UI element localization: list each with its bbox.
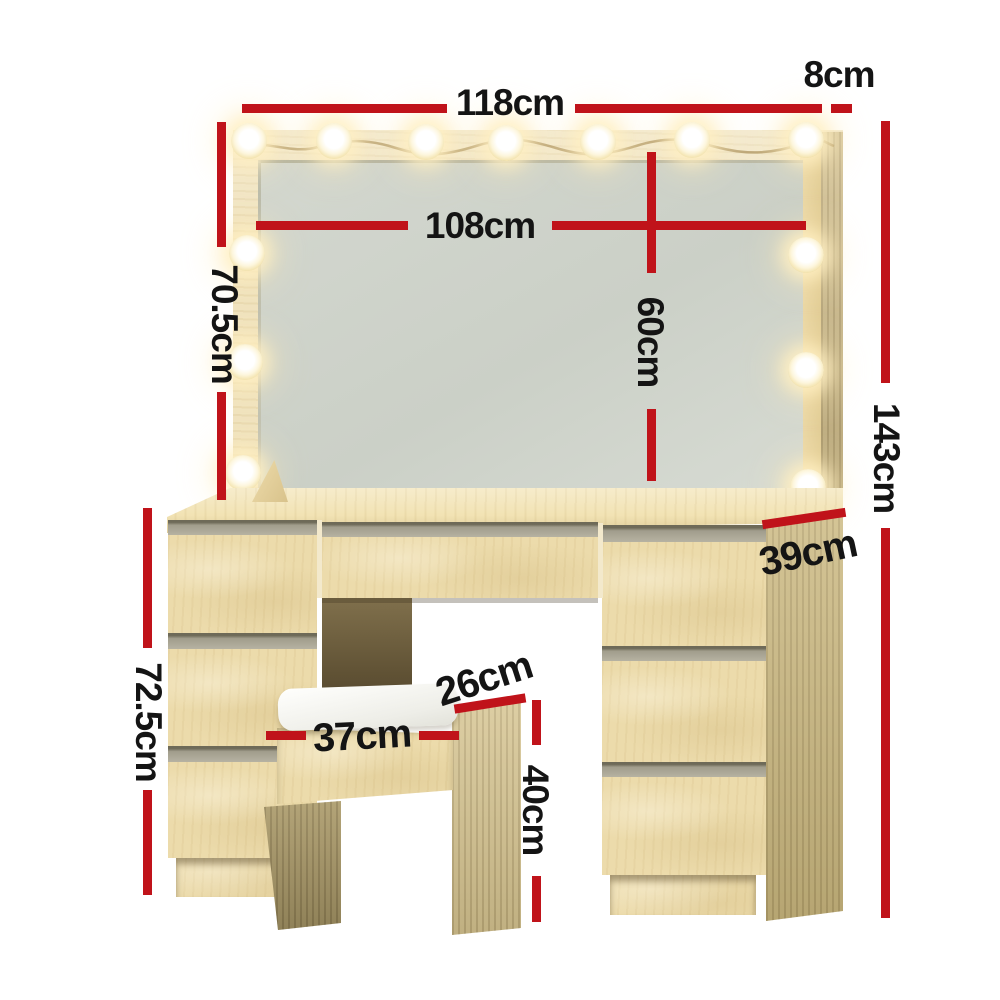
drawer-gap [168,520,317,535]
dim-line-mirror-height-top [217,122,226,247]
drawer-front [602,777,766,875]
light-bulb-icon [488,125,524,161]
drawer-gap [168,633,317,649]
dim-line-overall-height-bottom [881,528,890,918]
dimension-label-mirror-width: 108cm [400,206,560,246]
drawer-front [602,661,766,762]
dim-line-mirror-height-bottom [217,392,226,500]
right-unit-plinth [610,875,756,915]
drawer-gap [602,525,766,542]
product-dimension-diagram: 118cm 8cm 108cm 70.5cm 60cm 143cm 39cm 7… [0,0,1000,1000]
knee-hole-shadow [322,598,598,603]
dimension-label-top-side-depth: 8cm [759,55,919,95]
dimension-label-overall-width: 118cm [430,83,590,123]
light-bulb-icon [674,122,710,158]
dimension-label-mirror-inner-height: 60cm [630,262,670,422]
unit-divider [598,523,603,598]
light-bulb-icon [788,352,824,388]
dim-line-overall-width-left [242,104,447,113]
dim-line-mirror-width-left [256,221,408,230]
dim-line-table-height-bottom [143,790,152,895]
dimension-label-overall-height: 143cm [866,378,906,538]
light-bulb-icon [225,455,261,491]
light-bulb-icon [788,237,824,273]
dimension-label-stool-height: 40cm [515,730,555,890]
drawer-gap [322,522,598,537]
mirror-frame-side-face [821,132,843,488]
stool-left-leg [264,801,341,930]
drawer-front [322,537,598,598]
stool-right-leg [452,698,521,935]
light-bulb-icon [231,123,267,159]
light-bulb-icon [580,124,616,160]
dimension-label-table-height: 72.5cm [128,642,168,802]
dim-line-overall-width-right [575,104,822,113]
light-bulb-icon [408,124,444,160]
drawer-front [168,535,317,633]
light-bulb-icon [788,122,824,158]
dim-line-overall-height-top [881,121,890,383]
light-bulb-icon [316,123,352,159]
dimension-label-mirror-height: 70.5cm [204,244,244,404]
dim-line-mirror-inner-height-top [647,152,656,273]
dim-line-top-side-depth [831,104,852,113]
drawer-gap [602,646,766,661]
unit-divider [317,520,322,598]
dim-line-table-height-top [143,508,152,648]
mirror-frame-right-rail [800,132,821,488]
dim-line-mirror-width-right [552,221,806,230]
drawer-gap [602,762,766,777]
center-drawer [322,522,598,598]
dimension-label-stool-width: 37cm [281,712,443,760]
